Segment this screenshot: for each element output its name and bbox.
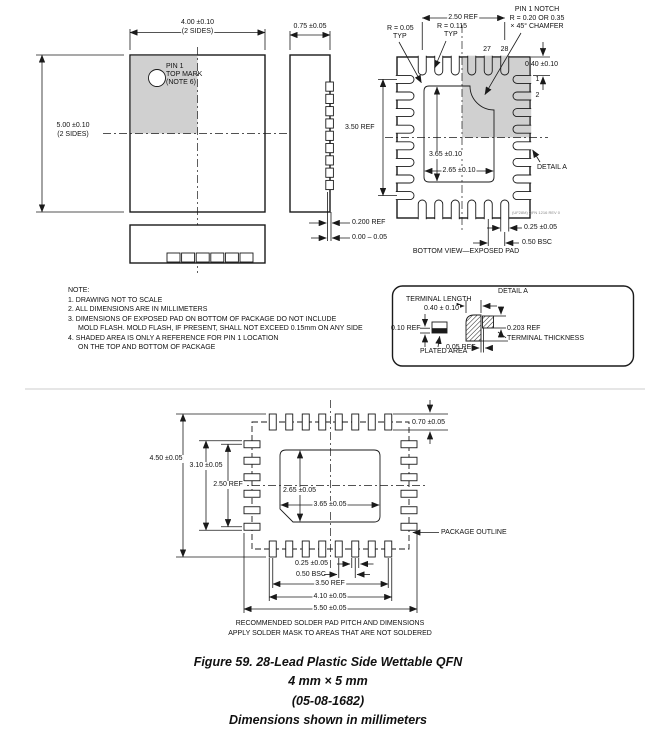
solder-pad bbox=[401, 457, 417, 464]
bottom-view bbox=[385, 25, 548, 232]
terminal-slot-right bbox=[513, 125, 531, 133]
terminal-slot-right bbox=[513, 158, 531, 166]
solder-pad bbox=[244, 441, 260, 448]
lead-square bbox=[326, 82, 334, 91]
terminal-slot-left bbox=[396, 125, 414, 133]
lead-square bbox=[326, 144, 334, 153]
solder-pad bbox=[401, 474, 417, 481]
terminal-slot-bottom bbox=[418, 200, 426, 219]
side-view bbox=[290, 31, 350, 241]
dim-top-width bbox=[130, 29, 265, 50]
solder-pad bbox=[335, 414, 342, 430]
leader-detail-a bbox=[533, 150, 540, 162]
solder-pad bbox=[385, 541, 392, 557]
terminal-slot-bottom bbox=[451, 200, 459, 219]
solder-pad bbox=[368, 414, 375, 430]
detail-a-box bbox=[393, 286, 634, 366]
terminal-slot-right bbox=[513, 142, 531, 150]
solder-pad bbox=[286, 414, 293, 430]
terminal-slot-left bbox=[396, 158, 414, 166]
terminal-slot-top bbox=[468, 56, 476, 75]
center-pad bbox=[280, 450, 380, 522]
lead-square bbox=[240, 253, 253, 262]
solder-pad bbox=[302, 541, 309, 557]
solder-pad bbox=[244, 474, 260, 481]
terminal-slot-top bbox=[418, 56, 426, 75]
solder-pad bbox=[244, 507, 260, 514]
terminal-slot-bottom bbox=[501, 200, 509, 219]
terminal-cross-section bbox=[466, 315, 481, 341]
pin1-shaded-quadrant bbox=[131, 56, 198, 134]
solder-pad bbox=[385, 414, 392, 430]
terminal-slot-top bbox=[484, 56, 492, 75]
solder-pad bbox=[401, 490, 417, 497]
pin1-top-mark-circle bbox=[149, 70, 166, 87]
terminal-slot-right bbox=[513, 92, 531, 100]
lead-square bbox=[326, 168, 334, 177]
solder-pad bbox=[286, 541, 293, 557]
lead-square bbox=[326, 180, 334, 189]
solder-pad bbox=[302, 414, 309, 430]
solder-pad bbox=[244, 457, 260, 464]
solder-pad bbox=[401, 507, 417, 514]
solder-pad bbox=[352, 414, 359, 430]
terminal-slot-left bbox=[396, 75, 414, 83]
lead-square bbox=[167, 253, 180, 262]
lead-square bbox=[211, 253, 224, 262]
solder-pad bbox=[352, 541, 359, 557]
terminal-slot-bottom bbox=[484, 200, 492, 219]
terminal-slot-right bbox=[513, 109, 531, 117]
terminal-slot-right bbox=[513, 175, 531, 183]
terminal-slot-left bbox=[396, 142, 414, 150]
lead-square bbox=[182, 253, 195, 262]
package-drawing-page: 4.00 ±0.10 (2 SIDES) 5.00 ±0.10 (2 SIDES… bbox=[0, 0, 652, 743]
solder-pad bbox=[401, 441, 417, 448]
solder-pad bbox=[401, 523, 417, 530]
lead-square bbox=[326, 119, 334, 128]
plating-strip bbox=[432, 328, 447, 333]
detail-a-frame bbox=[393, 286, 634, 366]
solder-pad bbox=[319, 541, 326, 557]
solder-pad bbox=[368, 541, 375, 557]
terminal-slot-left bbox=[396, 175, 414, 183]
lead-square bbox=[326, 94, 334, 103]
solder-pad bbox=[319, 414, 326, 430]
drawing-linework bbox=[0, 0, 652, 743]
terminal-slot-right bbox=[513, 192, 531, 200]
lead-square bbox=[326, 156, 334, 165]
terminal-slot-bottom bbox=[435, 200, 443, 219]
solder-pad bbox=[269, 541, 276, 557]
terminal-slot-left bbox=[396, 192, 414, 200]
terminal-slot-left bbox=[396, 109, 414, 117]
terminal-slot-right bbox=[513, 75, 531, 83]
lead-square bbox=[326, 131, 334, 140]
side-view-lead-squares bbox=[326, 82, 334, 190]
terminal-slot-bottom bbox=[468, 200, 476, 219]
solder-pad bbox=[269, 414, 276, 430]
lead-square bbox=[196, 253, 209, 262]
solder-pad bbox=[335, 541, 342, 557]
top-view bbox=[103, 47, 288, 273]
terminal-slot-left bbox=[396, 92, 414, 100]
side-view-body bbox=[290, 55, 330, 212]
solder-pad bbox=[244, 523, 260, 530]
solder-pad bbox=[244, 490, 260, 497]
terminal-slot-top bbox=[451, 56, 459, 75]
lead-square bbox=[225, 253, 238, 262]
lead-square bbox=[326, 107, 334, 116]
solder-pad-layout bbox=[236, 400, 428, 568]
terminal-plating-section bbox=[483, 316, 494, 328]
